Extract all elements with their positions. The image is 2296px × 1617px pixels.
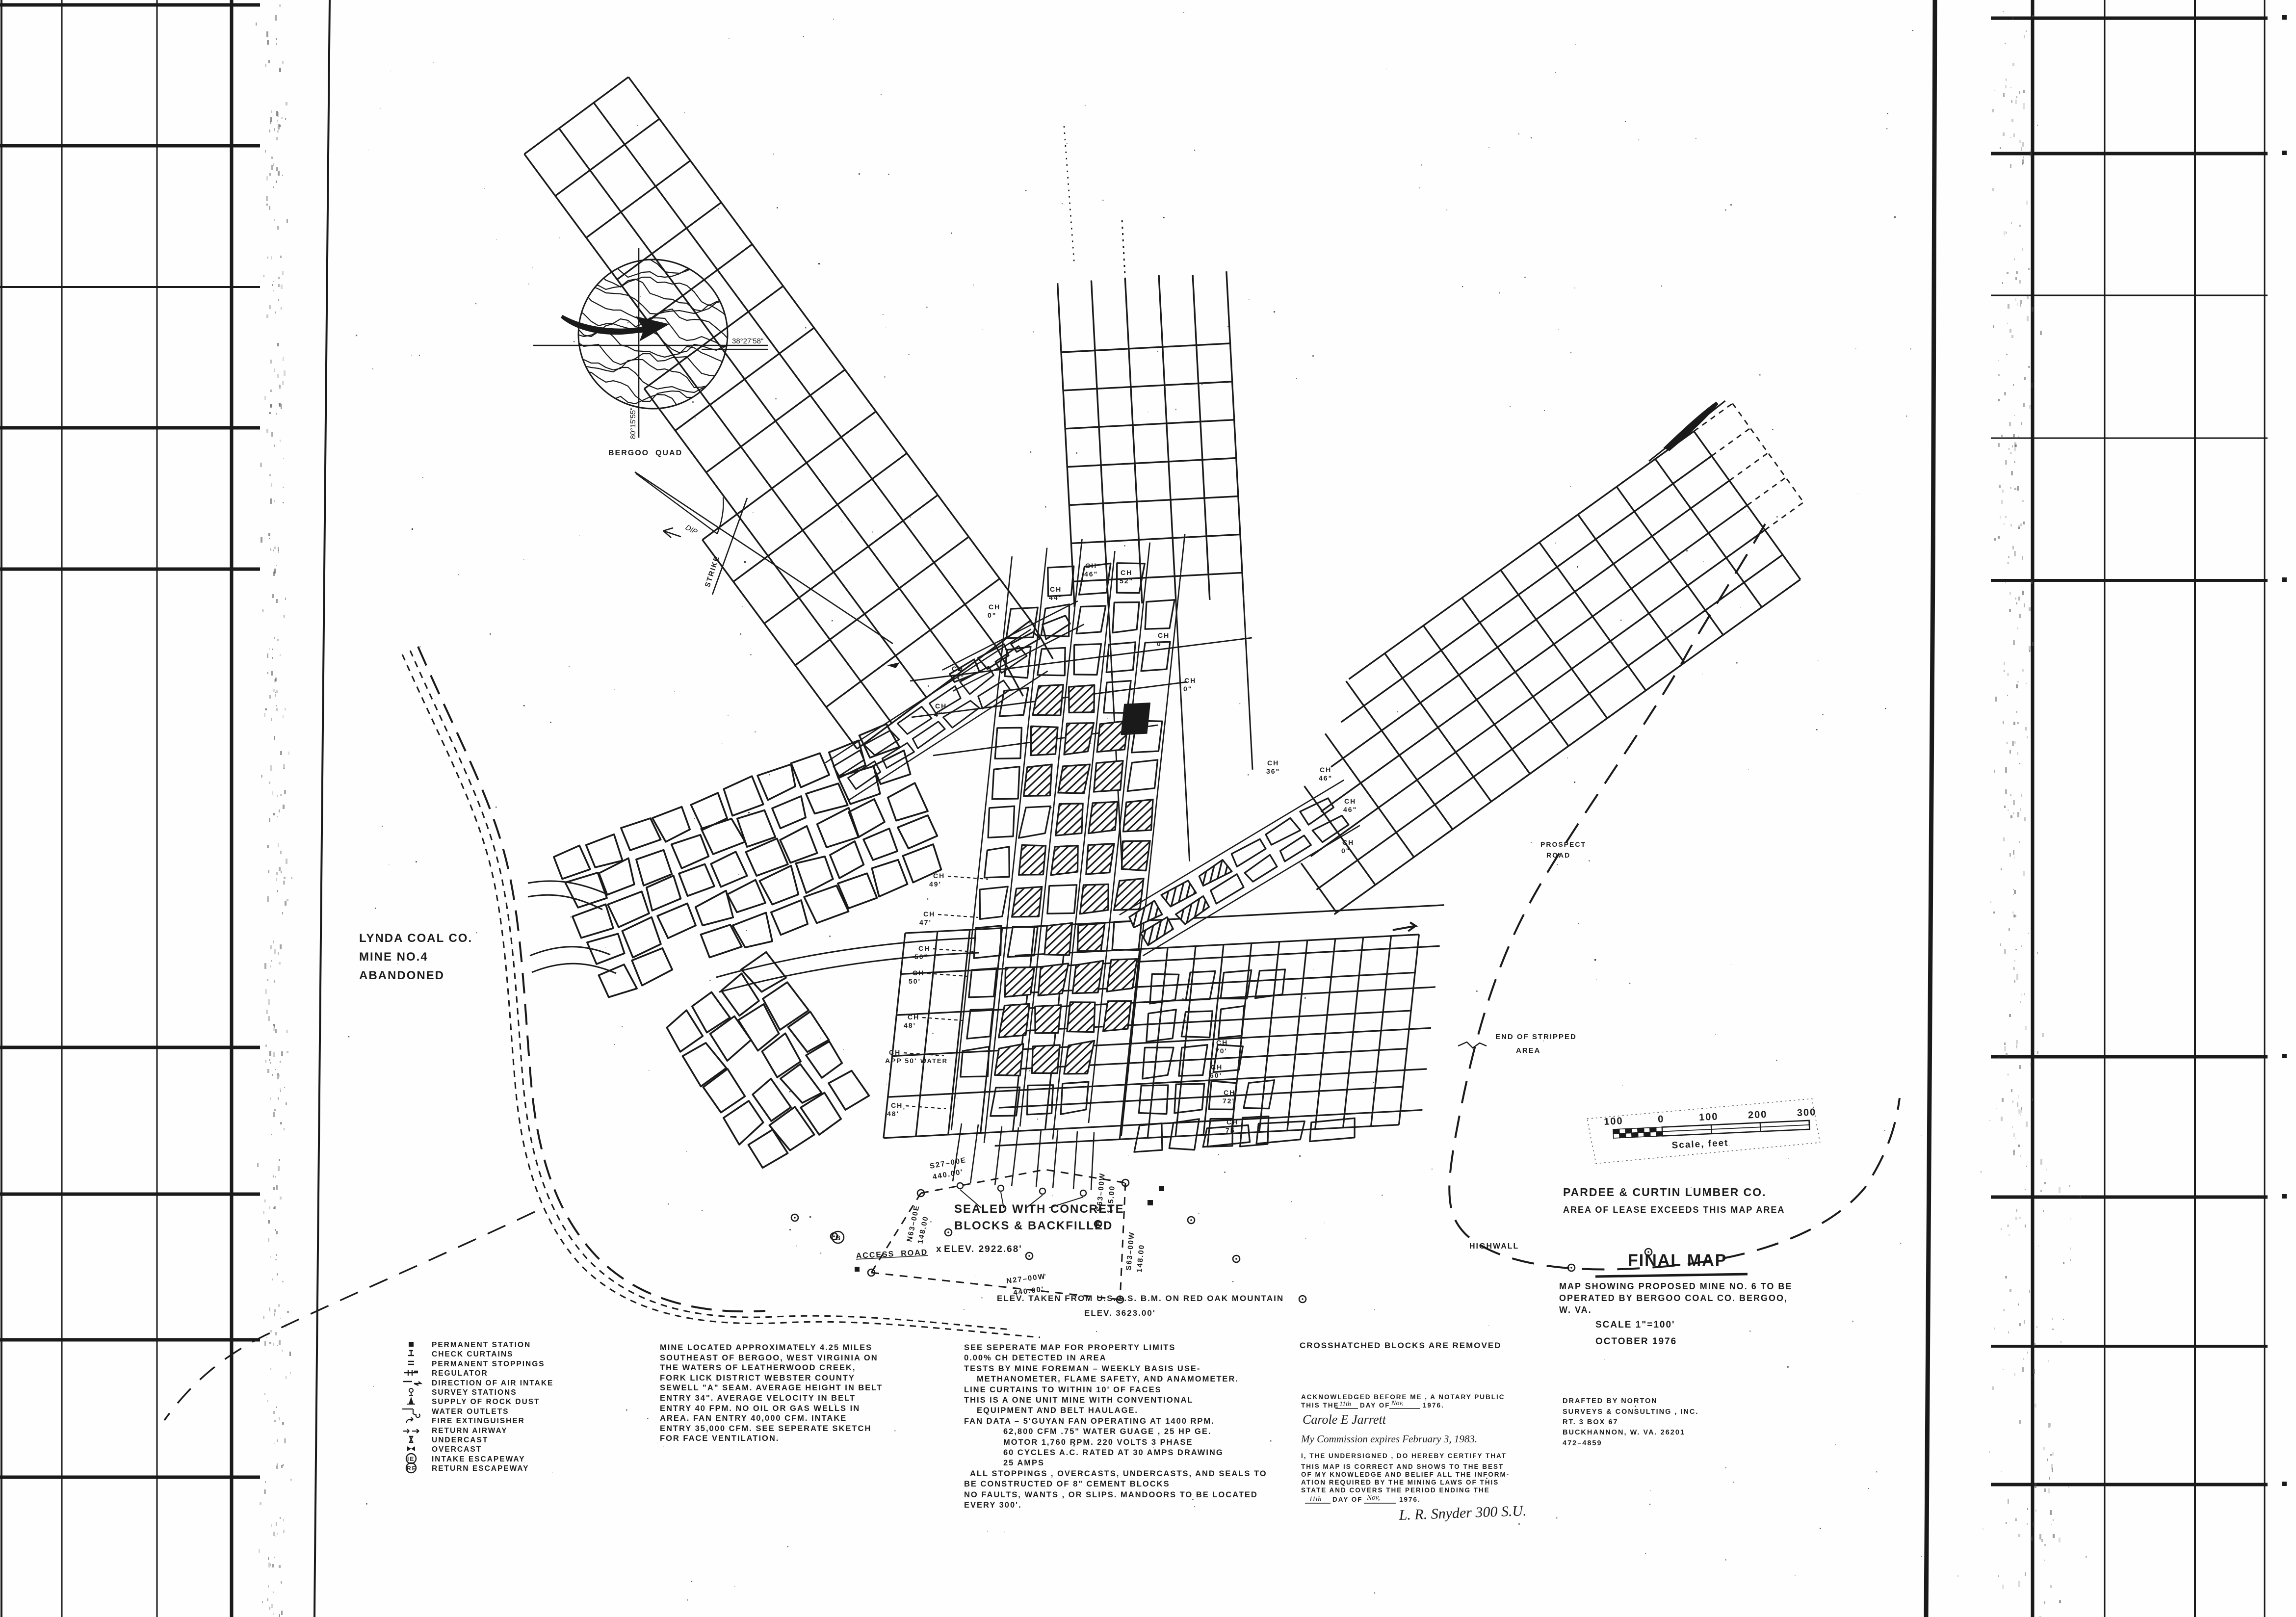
svg-text:CH: CH — [889, 1048, 901, 1056]
svg-text:11th: 11th — [1309, 1495, 1322, 1503]
svg-text:1976.: 1976. — [1399, 1496, 1421, 1503]
svg-text:SUPPLY OF ROCK DUST: SUPPLY OF ROCK DUST — [432, 1398, 540, 1406]
svg-text:END OF STRIPPED: END OF STRIPPED — [1495, 1033, 1577, 1041]
svg-text:1976.: 1976. — [1423, 1402, 1444, 1409]
svg-text:CH: CH — [935, 702, 947, 710]
svg-text:Nov,: Nov, — [1366, 1494, 1380, 1502]
svg-text:11th: 11th — [1339, 1401, 1351, 1408]
svg-text:300: 300 — [1797, 1107, 1816, 1119]
svg-text:49': 49' — [929, 880, 941, 888]
svg-text:INTAKE ESCAPEWAY: INTAKE ESCAPEWAY — [432, 1455, 525, 1463]
svg-text:MINE NO.4: MINE NO.4 — [359, 950, 428, 964]
svg-text:62,800 CFM .75" WATER G: 62,800 CFM .75" WATER GUAGE , 25 HP GE. — [1003, 1427, 1211, 1436]
svg-text:44": 44" — [1049, 594, 1063, 601]
svg-text:CH: CH — [918, 944, 930, 952]
svg-text:36": 36" — [1266, 767, 1280, 775]
svg-text:AREA OF LEASE EXCEEDS THI: AREA OF LEASE EXCEEDS THIS MAP AREA — [1563, 1205, 1785, 1215]
svg-text:FINAL MAP: FINAL MAP — [1628, 1251, 1727, 1270]
svg-text:Carole E Jarrett: Carole E Jarrett — [1303, 1412, 1386, 1427]
svg-text:NO FAULTS, WANTS , OR SLIPS: NO FAULTS, WANTS , OR SLIPS. MANDOORS TO… — [964, 1490, 1258, 1499]
svg-text:THIS MAP IS CORRECT AND S: THIS MAP IS CORRECT AND SHOWS TO THE BES… — [1301, 1463, 1504, 1470]
svg-text:SEE SEPERATE MAP FOR PROP: SEE SEPERATE MAP FOR PROPERTY LIMITS — [964, 1343, 1175, 1352]
svg-text:TESTS BY MINE FOREMAN – WEE: TESTS BY MINE FOREMAN – WEEKLY BASIS USE… — [964, 1364, 1200, 1373]
svg-text:FOR FACE VENTILATION.: FOR FACE VENTILATION. — [660, 1434, 779, 1443]
svg-text:46": 46" — [1343, 806, 1357, 813]
svg-text:WATER: WATER — [920, 1057, 948, 1065]
svg-text:B: B — [835, 1234, 841, 1242]
svg-text:x ELEV. 2922.68': x ELEV. 2922.68' — [936, 1244, 1022, 1254]
svg-text:THIS IS A ONE UNIT MINE: THIS IS A ONE UNIT MINE WITH CONVENTIONA… — [964, 1396, 1194, 1405]
svg-text:75: 75 — [1226, 1126, 1235, 1134]
svg-text:SOUTHEAST OF BERGOO, WEST: SOUTHEAST OF BERGOO, WEST VIRGINIA ON — [660, 1354, 878, 1362]
svg-text:BLOCKS & BACKFILLED: BLOCKS & BACKFILLED — [954, 1219, 1113, 1232]
svg-text:Nov,: Nov, — [1391, 1400, 1404, 1407]
svg-text:APP 50': APP 50' — [885, 1057, 917, 1065]
svg-text:CH: CH — [1342, 838, 1354, 846]
svg-text:46": 46" — [1084, 570, 1098, 578]
svg-text:CH: CH — [923, 910, 935, 918]
svg-text:MAP SHOWING PROPOSED MINE: MAP SHOWING PROPOSED MINE NO. 6 TO BE — [1559, 1281, 1792, 1291]
svg-text:RE: RE — [407, 1465, 417, 1472]
svg-text:25 AMPS: 25 AMPS — [1003, 1459, 1044, 1467]
svg-text:DIRECTION OF AIR INTAKE: DIRECTION OF AIR INTAKE — [432, 1379, 553, 1387]
svg-text:472–4859: 472–4859 — [1563, 1439, 1602, 1447]
svg-text:100: 100 — [1699, 1111, 1719, 1123]
svg-text:CH: CH — [891, 1101, 903, 1109]
svg-text:SCALE 1"=100': SCALE 1"=100' — [1595, 1320, 1675, 1330]
svg-text:METHANOMETER, FLAME SAFETY,: METHANOMETER, FLAME SAFETY, AND ANAMOMET… — [977, 1375, 1239, 1383]
svg-text:100: 100 — [1604, 1116, 1623, 1127]
svg-text:72': 72' — [1223, 1097, 1235, 1105]
svg-text:RETURN AIRWAY: RETURN AIRWAY — [432, 1427, 508, 1435]
svg-text:47': 47' — [919, 918, 932, 926]
svg-text:SURVEY STATIONS: SURVEY STATIONS — [432, 1388, 517, 1397]
svg-text:ROAD: ROAD — [1546, 851, 1570, 859]
svg-text:4": 4" — [934, 710, 943, 718]
svg-text:CH: CH — [1184, 677, 1196, 684]
svg-text:ENTRY 34". AVERAGE VELOCIT: ENTRY 34". AVERAGE VELOCITY IN BELT — [660, 1394, 856, 1403]
svg-text:MINE LOCATED APPROXIMATELY: MINE LOCATED APPROXIMATELY 4.25 MILES — [660, 1343, 872, 1352]
svg-text:EQUIPMENT AND BELT HAULA: EQUIPMENT AND BELT HAULAGE. — [977, 1406, 1138, 1415]
svg-text:PROSPECT: PROSPECT — [1540, 840, 1586, 848]
svg-text:60 CYCLES A.C. RATED AT: 60 CYCLES A.C. RATED AT 30 AMPS DRAWING — [1003, 1448, 1224, 1457]
svg-text:0: 0 — [1658, 1114, 1665, 1125]
svg-text:ENTRY 40 FPM. NO OIL OR: ENTRY 40 FPM. NO OIL OR GAS WELLS IN — [660, 1404, 860, 1413]
svg-text:RT. 3 BOX 67: RT. 3 BOX 67 — [1563, 1418, 1618, 1426]
svg-text:I, THE UNDERSIGNED , DO HER: I, THE UNDERSIGNED , DO HEREBY CERTIFY T… — [1301, 1452, 1507, 1460]
svg-text:DAY OF: DAY OF — [1360, 1402, 1390, 1409]
svg-text:CROSSHATCHED BLOCKS ARE REM: CROSSHATCHED BLOCKS ARE REMOVED — [1300, 1341, 1501, 1350]
svg-text:44": 44" — [951, 673, 965, 681]
svg-text:0": 0" — [1157, 640, 1166, 648]
svg-text:48': 48' — [887, 1110, 899, 1118]
svg-text:50': 50' — [909, 977, 921, 985]
svg-text:RETURN ESCAPEWAY: RETURN ESCAPEWAY — [432, 1464, 529, 1473]
svg-text:60': 60' — [1210, 1071, 1222, 1079]
svg-text:ATION REQUIRED BY THE MINI: ATION REQUIRED BY THE MINING LAWS OF THI… — [1301, 1479, 1499, 1486]
svg-text:48': 48' — [904, 1021, 916, 1029]
svg-text:THIS THE: THIS THE — [1301, 1402, 1339, 1409]
svg-text:OCTOBER 1976: OCTOBER 1976 — [1595, 1336, 1677, 1347]
svg-text:38°27'58": 38°27'58" — [732, 337, 763, 345]
svg-text:CH: CH — [1226, 1118, 1238, 1126]
svg-text:52": 52" — [1120, 577, 1133, 585]
svg-text:REGULATOR: REGULATOR — [432, 1369, 488, 1378]
svg-text:80°15'55": 80°15'55" — [629, 408, 637, 439]
svg-text:FIRE EXTINGUISHER: FIRE EXTINGUISHER — [432, 1417, 525, 1425]
svg-text:CH: CH — [1267, 759, 1279, 767]
svg-text:PERMANENT STOPPINGS: PERMANENT STOPPINGS — [432, 1360, 545, 1368]
svg-text:CH: CH — [913, 969, 924, 977]
svg-text:ABANDONED: ABANDONED — [359, 969, 444, 982]
svg-text:BERGOO QUAD: BERGOO QUAD — [608, 449, 682, 457]
svg-text:0.00% CH DETECTED IN AR: 0.00% CH DETECTED IN AREA — [964, 1354, 1107, 1362]
svg-text:PARDEE & CURTIN LUMBER CO.: PARDEE & CURTIN LUMBER CO. — [1563, 1186, 1766, 1199]
svg-text:AREA: AREA — [1516, 1046, 1541, 1055]
svg-text:ENTRY 35,000 CFM. SEE SEP: ENTRY 35,000 CFM. SEE SEPERATE SKETCH — [660, 1424, 871, 1433]
svg-text:CH: CH — [989, 603, 1000, 611]
svg-text:FORK LICK DISTRICT WEBSTE: FORK LICK DISTRICT WEBSTER COUNTY — [660, 1374, 855, 1382]
svg-text:DAY OF: DAY OF — [1332, 1496, 1363, 1503]
svg-text:CH: CH — [933, 872, 945, 880]
svg-text:LYNDA COAL CO.: LYNDA COAL CO. — [359, 932, 472, 945]
svg-text:My Commission expires February: My Commission expires February 3, 1983. — [1301, 1433, 1477, 1445]
svg-text:OF MY KNOWLEDGE AND BELIEF: OF MY KNOWLEDGE AND BELIEF ALL THE INFOR… — [1301, 1471, 1510, 1478]
svg-text:0": 0" — [1183, 685, 1192, 693]
svg-text:FAN DATA – 5'GUYAN FAN O: FAN DATA – 5'GUYAN FAN OPERATING AT 1400… — [964, 1417, 1215, 1426]
svg-text:CH: CH — [1158, 631, 1170, 639]
svg-text:CH: CH — [952, 665, 964, 673]
svg-text:UNDERCAST: UNDERCAST — [432, 1436, 488, 1444]
svg-text:CH: CH — [908, 1013, 919, 1021]
svg-text:AREA. FAN ENTRY 40,000: AREA. FAN ENTRY 40,000 CFM. INTAKE — [660, 1414, 847, 1423]
svg-text:MOTOR 1,760 RPM. 220 VOL: MOTOR 1,760 RPM. 220 VOLTS 3 PHASE — [1003, 1438, 1193, 1447]
svg-text:IE: IE — [407, 1456, 415, 1462]
svg-text:CH: CH — [1320, 766, 1331, 774]
svg-text:ALL STOPPINGS , OVERCASTS, U: ALL STOPPINGS , OVERCASTS, UNDERCASTS, A… — [970, 1469, 1267, 1478]
svg-text:EVERY 300'.: EVERY 300'. — [964, 1501, 1022, 1510]
svg-text:46": 46" — [1319, 774, 1332, 782]
svg-text:BUCKHANNON, W. VA. 26201: BUCKHANNON, W. VA. 26201 — [1563, 1429, 1685, 1436]
svg-text:0": 0" — [988, 611, 996, 619]
svg-text:OVERCAST: OVERCAST — [432, 1445, 482, 1454]
svg-text:DRAFTED BY NORTON: DRAFTED BY NORTON — [1563, 1397, 1658, 1405]
svg-text:ELEV. TAKEN FROM U.S.G.S. B.: ELEV. TAKEN FROM U.S.G.S. B.M. ON RED OA… — [997, 1294, 1284, 1303]
svg-text:OPERATED BY BERGOO COAL CO: OPERATED BY BERGOO COAL CO. BERGOO, — [1559, 1293, 1788, 1303]
svg-text:0": 0" — [1341, 847, 1350, 855]
svg-text:ELEV. 3623.00': ELEV. 3623.00' — [1084, 1308, 1156, 1318]
svg-text:PERMANENT STATION: PERMANENT STATION — [432, 1341, 531, 1349]
svg-text:50": 50" — [914, 953, 928, 961]
svg-text:BE CONSTRUCTED OF 8" CE: BE CONSTRUCTED OF 8" CEMENT BLOCKS — [964, 1480, 1170, 1488]
svg-text:STATE AND COVERS THE PERIO: STATE AND COVERS THE PERIOD ENDING THE — [1301, 1487, 1490, 1494]
svg-text:CH: CH — [1216, 1039, 1228, 1046]
svg-text:CH: CH — [1211, 1063, 1223, 1071]
svg-text:CH: CH — [1050, 585, 1062, 593]
svg-text:CH: CH — [1344, 797, 1356, 805]
svg-text:WATER OUTLETS: WATER OUTLETS — [432, 1408, 509, 1416]
svg-text:CHECK CURTAINS: CHECK CURTAINS — [432, 1350, 513, 1358]
svg-text:LINE CURTAINS TO WITHIN: LINE CURTAINS TO WITHIN 10' OF FACES — [964, 1385, 1162, 1394]
svg-text:THE WATERS OF LEATHERWOOD: THE WATERS OF LEATHERWOOD CREEK, — [660, 1363, 856, 1372]
svg-text:W. VA.: W. VA. — [1559, 1305, 1592, 1315]
svg-text:SEALED WITH CONCRETE: SEALED WITH CONCRETE — [954, 1202, 1124, 1216]
svg-text:CH: CH — [1121, 569, 1132, 576]
svg-text:70': 70' — [1215, 1047, 1227, 1055]
svg-text:200: 200 — [1748, 1109, 1767, 1121]
svg-text:SURVEYS & CONSULTING , INC.: SURVEYS & CONSULTING , INC. — [1563, 1408, 1698, 1416]
svg-text:HIGHWALL: HIGHWALL — [1469, 1242, 1519, 1251]
svg-text:CH: CH — [1224, 1089, 1235, 1096]
svg-text:CH: CH — [1085, 562, 1097, 570]
svg-text:SEWELL "A" SEAM. AVERAGE: SEWELL "A" SEAM. AVERAGE HEIGHT IN BELT — [660, 1383, 883, 1392]
